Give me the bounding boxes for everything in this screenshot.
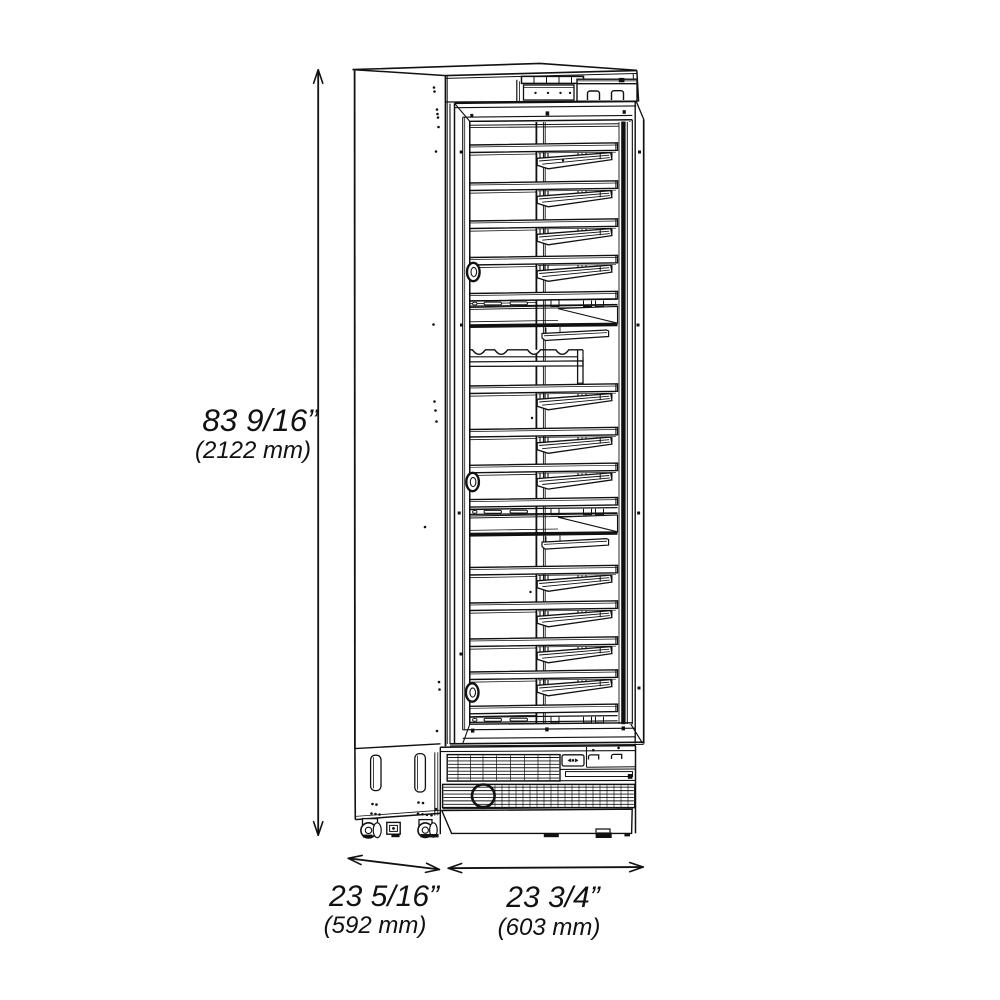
svg-text:23 5/16”: 23 5/16” bbox=[328, 880, 441, 913]
svg-text:83 9/16”: 83 9/16” bbox=[202, 402, 319, 438]
svg-text:(603 mm): (603 mm) bbox=[498, 914, 601, 941]
svg-text:(2122 mm): (2122 mm) bbox=[195, 437, 311, 464]
svg-text:(592 mm): (592 mm) bbox=[324, 912, 427, 939]
svg-text:23 3/4”: 23 3/4” bbox=[505, 881, 601, 914]
